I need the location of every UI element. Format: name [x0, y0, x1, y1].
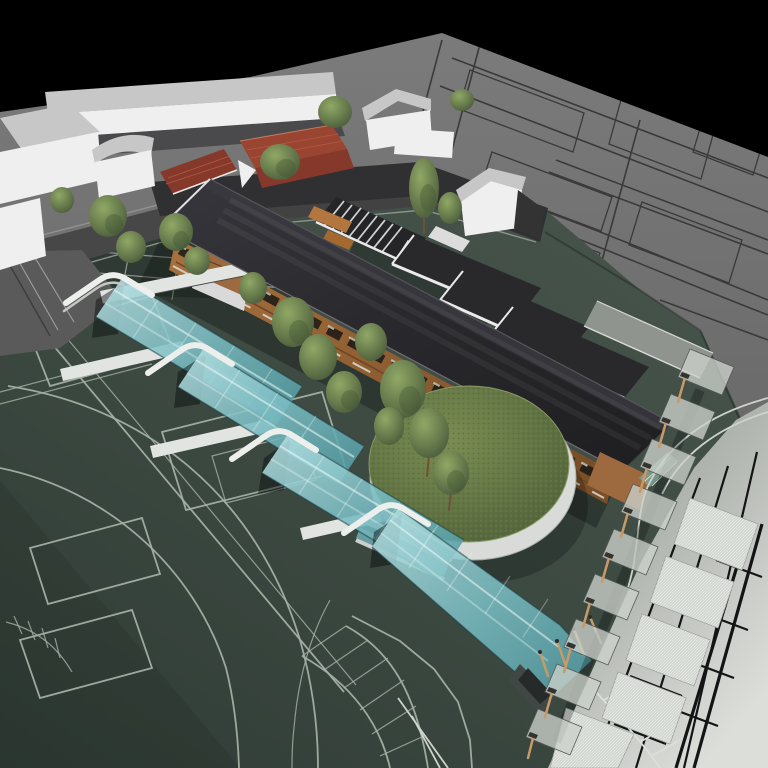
site-render: [0, 0, 768, 768]
render-canvas: [0, 0, 768, 768]
